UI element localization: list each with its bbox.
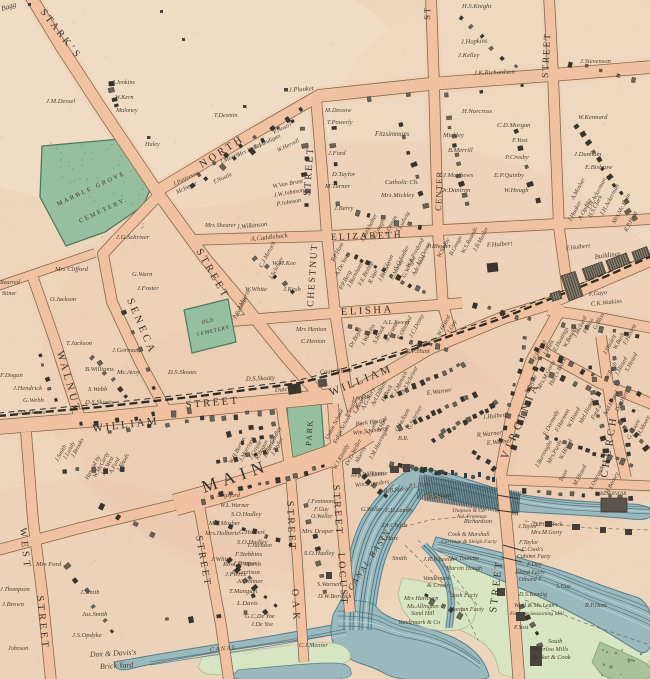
svg-text:J.Hendrick: J.Hendrick [13, 385, 43, 392]
svg-text:Brick Yard: Brick Yard [100, 660, 134, 671]
svg-text:Waterloo Mills: Waterloo Mills [531, 646, 569, 653]
svg-text:J.Thompson: J.Thompson [0, 587, 30, 593]
svg-text:C.D.Morgan: C.D.Morgan [497, 122, 531, 129]
svg-text:J.Kelley: J.Kelley [458, 52, 479, 59]
svg-text:G.C.De Yoe: G.C.De Yoe [245, 613, 275, 620]
svg-text:Mc.Avoy: Mc.Avoy [116, 369, 140, 376]
svg-text:J.Smith: J.Smith [80, 589, 100, 596]
svg-text:W.L.Warner: W.L.Warner [220, 502, 250, 509]
svg-text:Mrs.Holberts: Mrs.Holberts [204, 530, 239, 537]
svg-text:H.Norcross: H.Norcross [461, 108, 493, 115]
svg-text:R.P.Hunt: R.P.Hunt [405, 348, 430, 355]
svg-text:Sand Hill: Sand Hill [411, 611, 434, 617]
svg-text:Bogsford: Bogsford [217, 492, 241, 499]
svg-text:A.Holmer: A.Holmer [236, 578, 263, 585]
svg-text:Stiner: Stiner [2, 291, 17, 297]
svg-text:S.O.Hadley: S.O.Hadley [304, 550, 334, 557]
svg-text:M.Dessow: M.Dessow [324, 107, 352, 114]
svg-text:Market & Cook: Market & Cook [530, 654, 571, 661]
svg-text:Mrs Clifford: Mrs Clifford [54, 266, 89, 273]
svg-text:S.Webb: S.Webb [88, 386, 108, 393]
svg-text:J.G.Schriver: J.G.Schriver [116, 234, 150, 241]
svg-text:Haley: Haley [144, 141, 160, 148]
svg-text:N.L.Freeman: N.L.Freeman [456, 514, 487, 520]
svg-text:T.Jackson: T.Jackson [66, 340, 93, 347]
svg-text:Cabinet Facty: Cabinet Facty [517, 554, 551, 560]
svg-text:PARK: PARK [304, 419, 315, 446]
svg-text:D.S.Kendig: D.S.Kendig [518, 592, 547, 598]
svg-text:F.Guy: F.Guy [313, 507, 329, 513]
svg-text:C.J.Menrer: C.J.Menrer [299, 642, 328, 649]
svg-text:Mickley: Mickley [442, 132, 464, 139]
svg-text:J.Kesh: J.Kesh [283, 286, 301, 293]
svg-text:J.Garrison: J.Garrison [231, 569, 260, 576]
svg-text:J.Hopkins: J.Hopkins [461, 38, 488, 46]
svg-text:J.Stevenson: J.Stevenson [580, 58, 612, 65]
svg-text:Carriage & Sleigh Facty: Carriage & Sleigh Facty [441, 539, 497, 545]
svg-text:S.Warner: S.Warner [317, 581, 341, 588]
svg-text:Maloney: Maloney [115, 107, 138, 114]
svg-text:J.Matthews: J.Matthews [443, 172, 474, 179]
svg-text:G.Holbert: G.Holbert [239, 529, 265, 536]
svg-text:W.Hough: W.Hough [504, 187, 529, 194]
svg-text:Mrs.M.Gorty: Mrs.M.Gorty [530, 530, 562, 536]
svg-text:J.M.Dessel: J.M.Dessel [46, 98, 75, 105]
svg-text:J.Foster: J.Foster [137, 285, 159, 292]
svg-text:E.Bisbrow: E.Bisbrow [584, 164, 613, 171]
svg-text:B.Merrill: B.Merrill [448, 147, 473, 154]
svg-text:F.Yost: F.Yost [513, 625, 529, 631]
svg-text:G.Warn: G.Warn [132, 271, 153, 278]
svg-text:Favrette Seasoning Mill: Favrette Seasoning Mill [509, 611, 564, 617]
svg-text:J.Berry: J.Berry [334, 205, 354, 212]
svg-text:Johnson: Johnson [8, 646, 28, 652]
svg-text:S.Gay: S.Gay [556, 584, 571, 590]
svg-text:F.Taylor: F.Taylor [518, 540, 539, 546]
svg-text:D.Taylor: D.Taylor [331, 171, 356, 178]
svg-text:E.D.Lamby: E.D.Lamby [384, 508, 413, 514]
svg-text:W.Kennard: W.Kennard [578, 114, 608, 121]
svg-text:Cook & Marshall: Cook & Marshall [448, 532, 490, 538]
svg-text:Mrs.Mickley: Mrs.Mickley [380, 192, 414, 199]
svg-text:S.O.Hadley: S.O.Hadley [231, 511, 261, 518]
svg-text:Vandemark: Vandemark [423, 576, 451, 582]
svg-text:Ross & Marsh: Ross & Marsh [222, 561, 262, 568]
svg-text:RESERVOIR: RESERVOIR [599, 491, 627, 497]
svg-text:J.Fenimore: J.Fenimore [307, 499, 335, 505]
svg-text:H.S.Knight: H.S.Knight [461, 3, 491, 10]
svg-text:Smith: Smith [392, 555, 408, 562]
svg-text:J.Brown: J.Brown [2, 601, 25, 608]
svg-text:F.Day: F.Day [526, 562, 542, 568]
svg-text:Catholic Ch.: Catholic Ch. [385, 179, 419, 186]
svg-text:Mrs Hartburn: Mrs Hartburn [403, 596, 438, 602]
svg-text:Dr.Daniron: Dr.Daniron [439, 187, 471, 194]
svg-text:Rearred: Rearred [0, 280, 21, 286]
svg-text:Mrs Shearer: Mrs Shearer [204, 222, 236, 229]
svg-text:Island Facty: Island Facty [514, 570, 545, 576]
svg-text:D.S.Skoats: D.S.Skoats [84, 399, 114, 406]
svg-text:W.Kern: W.Kern [115, 94, 134, 101]
svg-text:T.Powerly: T.Powerly [327, 119, 353, 126]
svg-text:L.Davis: L.Davis [236, 600, 258, 607]
svg-text:B.Williams: B.Williams [85, 366, 114, 373]
svg-text:D.S.Skoats: D.S.Skoats [167, 369, 197, 376]
svg-text:G.Hart: G.Hart [379, 535, 398, 542]
svg-text:J.Jenkins: J.Jenkins [112, 79, 135, 86]
svg-text:J.Dunham: J.Dunham [574, 151, 602, 158]
svg-text:O.Jackson: O.Jackson [50, 296, 76, 303]
svg-text:OAK: OAK [289, 589, 302, 625]
svg-text:P.Crosby: P.Crosby [504, 154, 529, 161]
svg-text:La Tourette: La Tourette [450, 556, 479, 562]
svg-text:F.Yost: F.Yost [511, 137, 528, 144]
svg-text:F.Stebbins: F.Stebbins [234, 551, 263, 558]
svg-text:Morgan Facty: Morgan Facty [448, 607, 484, 613]
svg-text:Olhand F.: Olhand F. [519, 577, 542, 583]
svg-text:D.S.Skoats: D.S.Skoats [16, 409, 46, 416]
svg-text:J.S.Opdyke: J.S.Opdyke [72, 632, 102, 639]
svg-text:Ms.Allington: Ms.Allington [406, 604, 439, 610]
svg-text:O.Weller: O.Weller [311, 514, 333, 520]
svg-text:E.P.Quinby: E.P.Quinby [493, 172, 524, 179]
svg-text:B.R.: B.R. [398, 436, 409, 442]
svg-text:South: South [548, 638, 562, 645]
svg-text:Mrs.Mosher: Mrs.Mosher [208, 520, 241, 527]
svg-text:J.K.Richardson: J.K.Richardson [474, 69, 516, 77]
svg-text:T.Mangum: T.Mangum [229, 588, 258, 595]
svg-text:Sash Facty: Sash Facty [451, 593, 478, 599]
svg-text:Jas.Smith: Jas.Smith [82, 611, 108, 618]
svg-text:Mrs Ford: Mrs Ford [35, 561, 62, 568]
svg-text:T.Desmin: T.Desmin [214, 112, 237, 119]
svg-text:Mrs Draper: Mrs Draper [301, 528, 334, 535]
svg-text:G.Weller: G.Weller [361, 507, 383, 513]
svg-text:Dr.Childs: Dr.Childs [381, 522, 408, 529]
svg-text:J.De Yoe: J.De Yoe [251, 621, 273, 628]
svg-text:ST: ST [422, 6, 432, 20]
svg-text:Fitzsimmons: Fitzsimmons [374, 131, 410, 138]
svg-text:Mrs Henion: Mrs Henion [295, 326, 326, 333]
svg-text:D.W.Borwick: D.W.Borwick [317, 593, 352, 600]
svg-text:Vandemark & Co: Vandemark & Co [398, 620, 440, 626]
svg-text:Marvin Hough: Marvin Hough [445, 566, 482, 572]
svg-text:C.Henion: C.Henion [301, 338, 325, 345]
svg-text:F.Dogan: F.Dogan [0, 372, 23, 379]
svg-text:C.Cook's: C.Cook's [522, 547, 544, 553]
svg-text:R.P.Hunt: R.P.Hunt [584, 603, 607, 609]
svg-text:Hart's Block: Hart's Block [532, 522, 563, 528]
svg-text:J.Gorman: J.Gorman [112, 347, 139, 354]
svg-text:& Crosby: & Crosby [427, 583, 451, 589]
svg-text:Wind & Mc.Lean's: Wind & Mc.Lean's [514, 603, 559, 609]
svg-text:M.Turner: M.Turner [324, 183, 351, 190]
svg-text:G.Webb: G.Webb [23, 397, 45, 404]
svg-text:J.Ford: J.Ford [328, 150, 346, 157]
svg-text:T.Jackson: T.Jackson [247, 542, 272, 549]
